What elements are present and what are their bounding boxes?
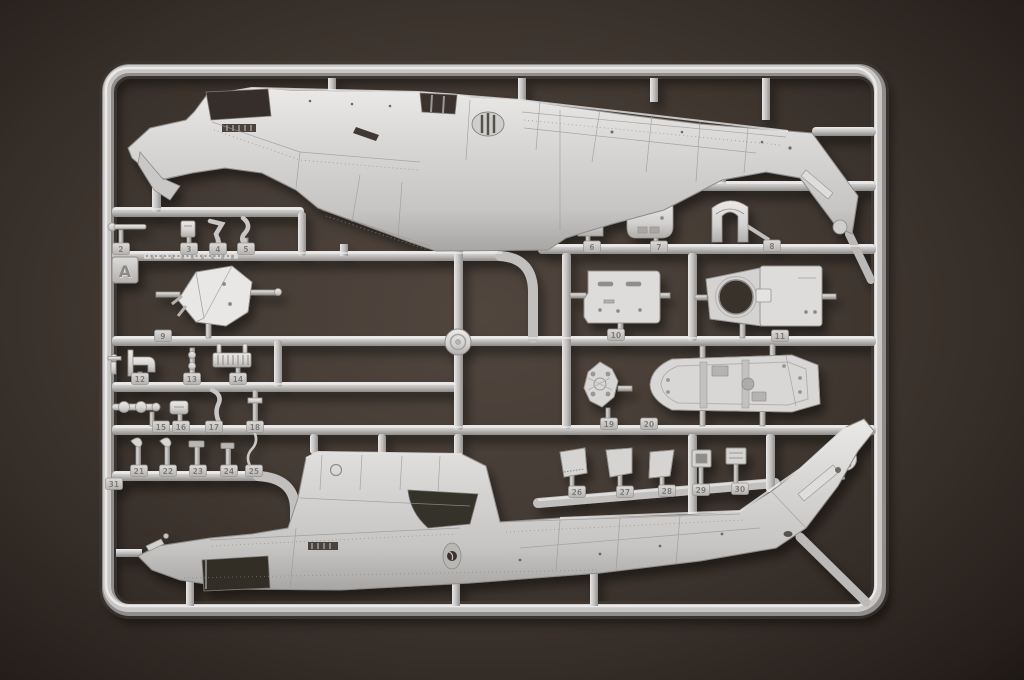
svg-text:13: 13 [187,375,197,384]
part-tag-19: 1919 [601,418,618,430]
part-tag-16: 1616 [173,421,190,433]
part-8 [712,201,769,242]
center-node [445,329,471,355]
svg-text:14: 14 [233,375,243,384]
part-tag-2: 22 [113,243,130,255]
part-3 [181,221,195,246]
lower-fuselage-half [138,419,874,591]
svg-text:10: 10 [611,331,621,340]
part-17 [212,390,221,426]
photo-stage: A A [0,0,1024,680]
part-tag-7: 77 [651,241,668,253]
svg-text:4: 4 [215,245,220,254]
part-tag-25: 2525 [246,465,263,477]
svg-text:6: 6 [589,243,594,252]
part-tag-8: 88 [764,240,781,252]
svg-text:17: 17 [209,423,219,432]
part-tag-22: 2222 [160,465,177,477]
part-tag-5: 55 [238,243,255,255]
svg-text:31: 31 [109,480,119,489]
svg-text:11: 11 [775,332,785,341]
part-25 [248,430,256,470]
part-tag-9: 99 [155,330,172,342]
part-26 [560,448,587,488]
part-tag-30: 3030 [732,483,749,495]
svg-text:22: 22 [163,467,173,476]
svg-text:20: 20 [644,420,654,429]
svg-text:12: 12 [135,375,145,384]
part-30 [726,448,746,485]
part-5 [242,218,248,246]
part-tag-6: 66 [584,241,601,253]
svg-text:25: 25 [249,467,259,476]
part-tag-26: 2626 [569,486,586,498]
svg-text:9: 9 [160,332,165,341]
sprue-assembly: A A [106,68,881,610]
svg-text:2: 2 [118,245,123,254]
svg-text:7: 7 [656,243,661,252]
part-27 [606,448,632,488]
part-10 [570,271,670,337]
part-tag-29: 2929 [693,484,710,496]
part-19 [584,362,632,426]
part-4 [210,221,222,246]
part-tag-28: 2828 [659,485,676,497]
svg-text:16: 16 [176,423,186,432]
sprue-letter-tag: A A [112,257,138,283]
svg-text:8: 8 [769,242,774,251]
svg-text:23: 23 [193,467,203,476]
part-tag-3: 33 [181,243,198,255]
svg-text:28: 28 [662,487,672,496]
svg-text:21: 21 [134,467,144,476]
part-tag-10: 1010 [608,329,625,341]
part-tag-11: 1111 [772,330,789,342]
svg-text:5: 5 [243,245,248,254]
svg-text:26: 26 [572,488,582,497]
part-tag-13: 1313 [184,373,201,385]
part-tag-12: 1212 [132,373,149,385]
part-tag-4: 44 [210,243,227,255]
part-18 [248,390,262,426]
svg-text:30: 30 [735,485,745,494]
part-tag-27: 2727 [617,486,634,498]
part-9 [156,266,282,338]
sprue-photo: A A [0,0,1024,680]
svg-text:18: 18 [250,423,260,432]
part-tag-18: 1818 [247,421,264,433]
svg-text:3: 3 [186,245,191,254]
part-tag-31: 3131 [106,478,123,490]
part-tag-23: 2323 [190,465,207,477]
part-tag-21: 2121 [131,465,148,477]
part-tag-17: 1717 [206,421,223,433]
part-tag-24: 2424 [221,465,238,477]
svg-text:27: 27 [620,488,630,497]
svg-text:24: 24 [224,467,234,476]
svg-text:15: 15 [156,423,166,432]
svg-text:29: 29 [696,486,706,495]
part-tag-14: 1414 [230,373,247,385]
part-20 [650,344,820,426]
sprue-letter: A [119,262,132,281]
part-11 [695,266,836,338]
part-28 [649,450,674,488]
part-tag-15: 1515 [153,421,170,433]
svg-text:19: 19 [604,420,614,429]
part-tag-20: 2020 [641,418,658,430]
